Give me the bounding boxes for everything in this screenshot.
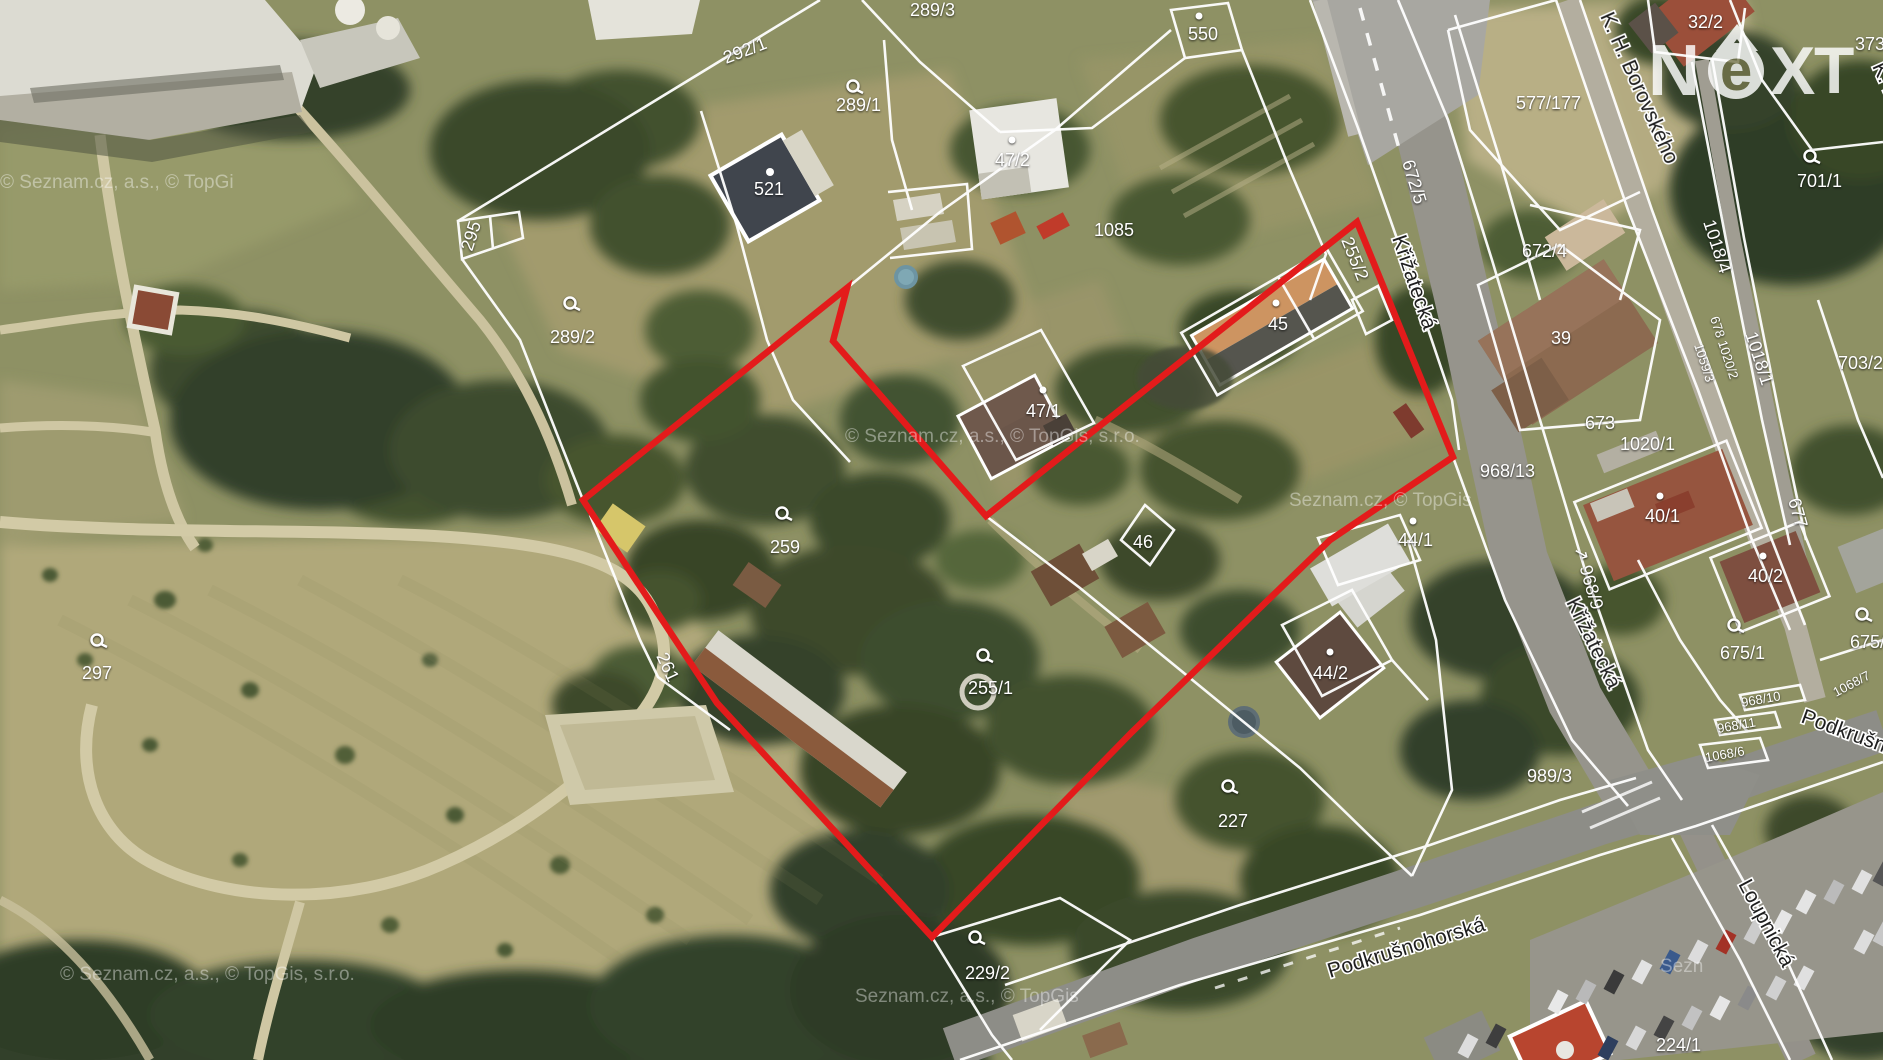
svg-text:521: 521 [754,179,784,199]
svg-text:703/2: 703/2 [1838,353,1883,373]
svg-text:550: 550 [1188,24,1218,44]
svg-text:259: 259 [770,537,800,557]
svg-text:1085: 1085 [1094,220,1134,240]
svg-text:N: N [1648,31,1700,111]
svg-text:Seznam.cz, © TopGis: Seznam.cz, © TopGis [1289,490,1472,511]
svg-text:297: 297 [82,663,112,683]
svg-text:289/3: 289/3 [910,0,955,20]
svg-text:44/1: 44/1 [1398,530,1433,550]
svg-text:40/1: 40/1 [1645,506,1680,526]
svg-text:Seznam.cz, a.s., © TopGis: Seznam.cz, a.s., © TopGis [855,986,1079,1007]
svg-text:289/2: 289/2 [550,327,595,347]
svg-text:675/3: 675/3 [1850,632,1883,652]
svg-text:229/2: 229/2 [965,963,1010,983]
svg-text:T: T [1814,33,1854,107]
svg-text:675/1: 675/1 [1720,643,1765,663]
svg-text:989/3: 989/3 [1527,766,1572,786]
svg-text:44/2: 44/2 [1313,663,1348,683]
svg-text:255/1: 255/1 [968,678,1013,698]
svg-text:1020/1: 1020/1 [1620,434,1675,454]
svg-text:577/177: 577/177 [1516,93,1581,113]
svg-text:673: 673 [1585,413,1615,433]
svg-text:373: 373 [1855,34,1883,54]
svg-text:© Seznam.cz, a.s., © TopGis, s: © Seznam.cz, a.s., © TopGis, s.r.o. [60,964,355,985]
svg-text:47/2: 47/2 [995,150,1030,170]
svg-text:672/4: 672/4 [1522,241,1567,261]
svg-text:32/2: 32/2 [1688,12,1723,32]
svg-text:© Seznam.cz, a.s., © TopGis, s: © Seznam.cz, a.s., © TopGis, s.r.o. [845,426,1140,447]
svg-text:Sezn: Sezn [1660,956,1703,977]
svg-text:47/1: 47/1 [1026,401,1061,421]
svg-text:40/2: 40/2 [1748,566,1783,586]
svg-text:© Seznam.cz, a.s., © TopGi: © Seznam.cz, a.s., © TopGi [0,172,234,193]
svg-text:46: 46 [1133,532,1153,552]
svg-text:701/1: 701/1 [1797,171,1842,191]
svg-text:289/1: 289/1 [836,95,881,115]
svg-text:227: 227 [1218,811,1248,831]
svg-text:968/13: 968/13 [1480,461,1535,481]
svg-text:45: 45 [1268,314,1288,334]
svg-text:224/1: 224/1 [1656,1035,1701,1055]
svg-text:X: X [1770,33,1815,109]
svg-text:39: 39 [1551,328,1571,348]
